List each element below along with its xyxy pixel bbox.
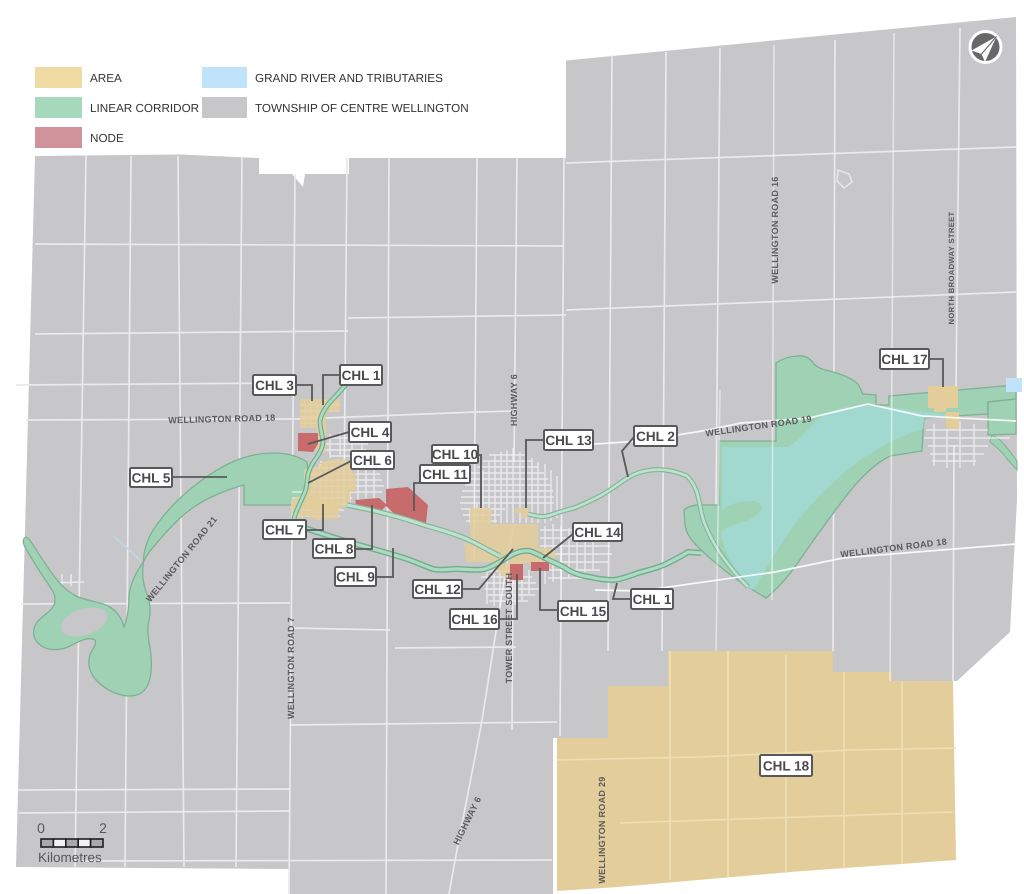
svg-text:CHL 11: CHL 11 — [422, 467, 468, 482]
svg-text:CHL 3: CHL 3 — [255, 378, 294, 393]
svg-text:CHL 7: CHL 7 — [265, 522, 304, 537]
svg-text:CHL 6: CHL 6 — [353, 453, 392, 468]
svg-text:WELLINGTON ROAD 29: WELLINGTON ROAD 29 — [597, 776, 607, 883]
svg-text:CHL 5: CHL 5 — [132, 470, 171, 485]
svg-text:LINEAR CORRIDOR: LINEAR CORRIDOR — [90, 102, 199, 115]
svg-text:HIGHWAY 6: HIGHWAY 6 — [509, 374, 519, 426]
svg-text:Kilometres: Kilometres — [38, 850, 102, 865]
svg-text:TOWER STREET SOUTH: TOWER STREET SOUTH — [504, 573, 514, 684]
svg-text:GRAND RIVER AND TRIBUTARIES: GRAND RIVER AND TRIBUTARIES — [255, 72, 443, 85]
svg-text:NORTH BROADWAY STREET: NORTH BROADWAY STREET — [947, 211, 956, 324]
svg-text:CHL 1: CHL 1 — [633, 592, 672, 607]
svg-text:CHL 12: CHL 12 — [414, 582, 460, 597]
svg-text:0: 0 — [37, 820, 45, 836]
svg-text:AREA: AREA — [90, 72, 122, 85]
svg-text:CHL 2: CHL 2 — [636, 429, 675, 444]
svg-text:CHL 1: CHL 1 — [342, 368, 381, 383]
svg-text:CHL 8: CHL 8 — [315, 541, 354, 556]
svg-text:CHL 14: CHL 14 — [574, 525, 621, 540]
svg-text:CHL 10: CHL 10 — [432, 447, 478, 462]
svg-text:2: 2 — [99, 820, 107, 836]
svg-text:CHL 9: CHL 9 — [336, 569, 375, 584]
svg-text:CHL 16: CHL 16 — [451, 612, 498, 627]
svg-text:TOWNSHIP OF CENTRE WELLINGTON: TOWNSHIP OF CENTRE WELLINGTON — [255, 102, 469, 115]
svg-text:WELLINGTON ROAD 7: WELLINGTON ROAD 7 — [286, 617, 296, 719]
svg-text:CHL 17: CHL 17 — [881, 352, 927, 367]
svg-text:CHL 15: CHL 15 — [560, 604, 607, 619]
svg-text:CHL 18: CHL 18 — [763, 758, 810, 773]
svg-text:CHL 4: CHL 4 — [351, 425, 390, 440]
svg-text:WELLINGTON ROAD 16: WELLINGTON ROAD 16 — [770, 176, 780, 283]
svg-text:NODE: NODE — [90, 132, 124, 145]
svg-text:CHL 13: CHL 13 — [545, 433, 592, 448]
